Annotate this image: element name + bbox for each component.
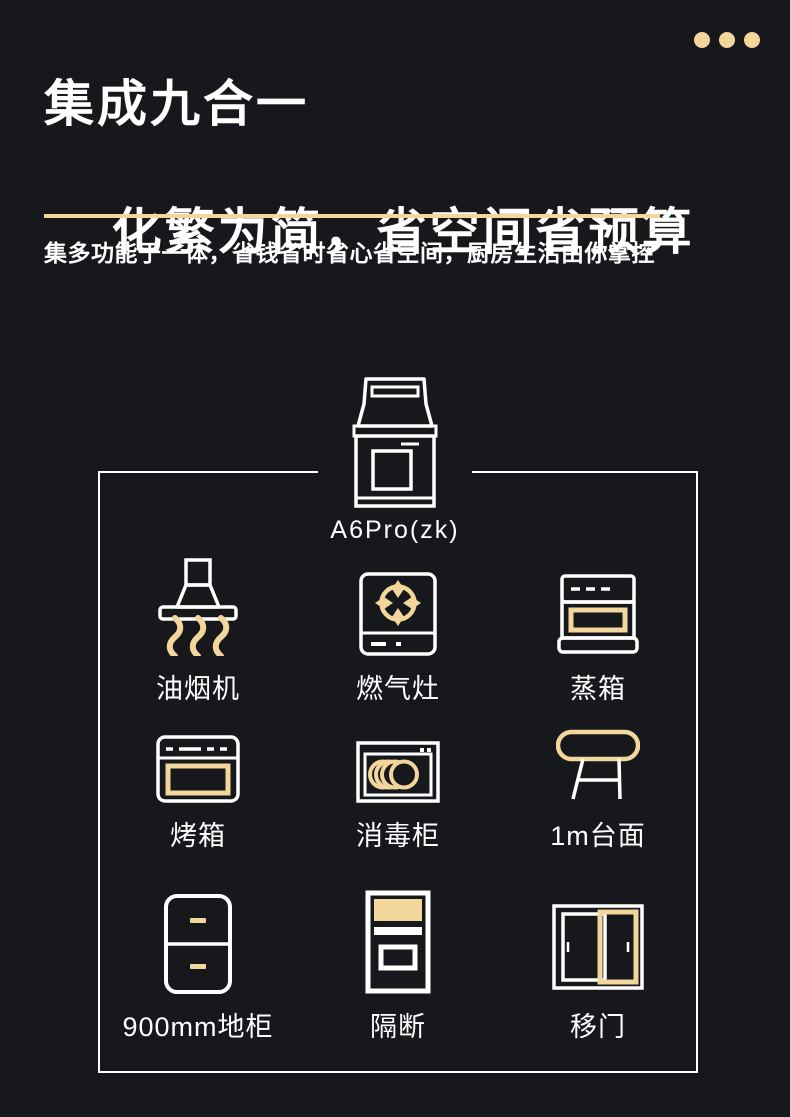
feature-floor-cabinet: 900mm地柜: [98, 878, 298, 1044]
countertop-icon: [556, 729, 640, 803]
feature-label: 1m台面: [550, 814, 646, 853]
feature-label: 烤箱: [170, 814, 226, 853]
promo-page: 集成九合一 化繁为简，省空间省预算 集多功能于一体，省钱省时省心省空间，厨房生活…: [0, 0, 790, 1117]
page-title: 集成九合一 化繁为简，省空间省预算: [44, 72, 744, 328]
feature-label: 900mm地柜: [122, 1005, 273, 1044]
feature-range-hood: 油烟机: [98, 558, 298, 706]
feature-disinfection-cabinet: 消毒柜: [298, 720, 498, 853]
steam-oven-icon: [557, 574, 639, 656]
feature-label: 燃气灶: [356, 667, 440, 706]
feature-label: 蒸箱: [570, 667, 626, 706]
gas-stove-icon: [359, 572, 437, 656]
dot-icon: [719, 32, 735, 48]
gold-divider: [44, 214, 660, 218]
feature-label: 隔断: [370, 1005, 426, 1044]
feature-label: 移门: [570, 1005, 626, 1044]
product-model-label: A6Pro(zk): [330, 516, 459, 545]
decor-dots: [694, 32, 760, 48]
product-block: A6Pro(zk): [318, 376, 472, 550]
floor-cabinet-icon: [164, 894, 232, 994]
feature-gas-stove: 燃气灶: [298, 558, 498, 706]
sliding-door-icon: [552, 904, 644, 994]
page-subtitle: 集多功能于一体，省钱省时省心省空间，厨房生活由你掌控: [44, 234, 764, 268]
disinfection-cabinet-icon: [356, 741, 440, 803]
dot-icon: [744, 32, 760, 48]
feature-oven: 烤箱: [98, 720, 298, 853]
integrated-stove-icon: [351, 376, 439, 510]
feature-label: 油烟机: [156, 667, 240, 706]
title-line1: 集成九合一: [44, 76, 309, 132]
feature-countertop: 1m台面: [498, 720, 698, 853]
dot-icon: [694, 32, 710, 48]
range-hood-icon: [153, 558, 243, 656]
partition-icon: [364, 890, 432, 994]
feature-label: 消毒柜: [356, 814, 440, 853]
oven-icon: [156, 735, 240, 803]
feature-partition: 隔断: [298, 878, 498, 1044]
feature-steam-oven: 蒸箱: [498, 558, 698, 706]
feature-sliding-door: 移门: [498, 878, 698, 1044]
